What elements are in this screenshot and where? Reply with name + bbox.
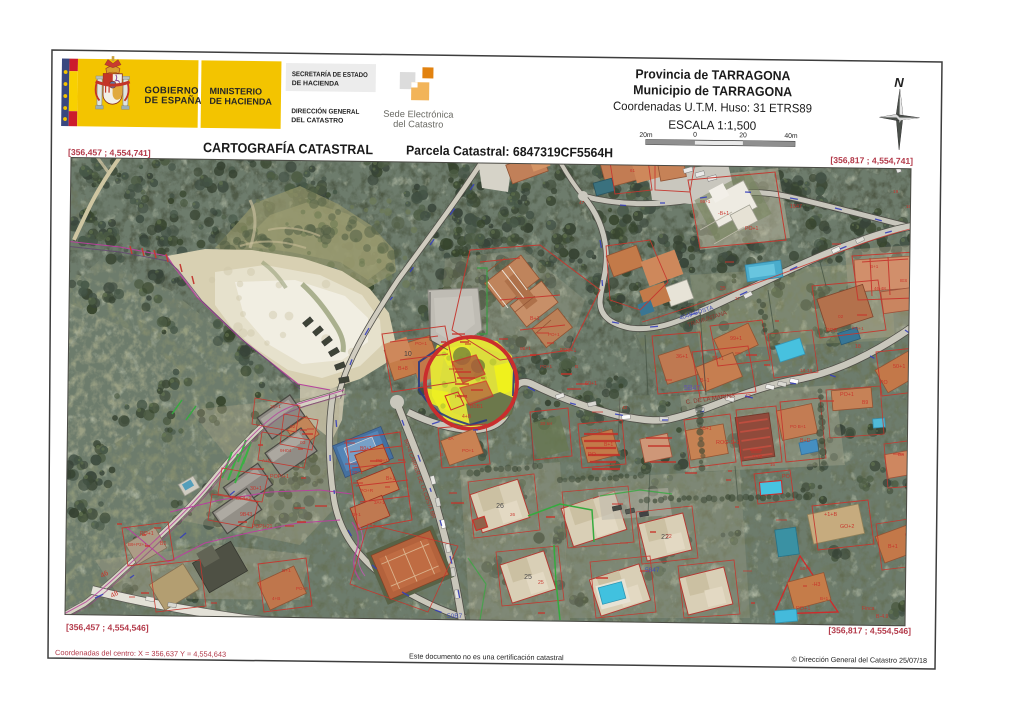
svg-text:CARTOGRAFÍA CATASTRAL: CARTOGRAFÍA CATASTRAL: [203, 140, 373, 157]
svg-text:DEL CATASTRO: DEL CATASTRO: [291, 117, 343, 125]
svg-text:0: 0: [693, 132, 697, 139]
svg-text:Este documento no es una certi: Este documento no es una certificación c…: [409, 652, 564, 663]
svg-text:N: N: [894, 75, 904, 90]
svg-text:Municipio de TARRAGONA: Municipio de TARRAGONA: [633, 82, 793, 99]
svg-text:[356,457 ; 4,554,741]: [356,457 ; 4,554,741]: [68, 147, 151, 158]
svg-text:[356,817 ; 4,554,546]: [356,817 ; 4,554,546]: [828, 625, 911, 636]
svg-text:DE HACIENDA: DE HACIENDA: [292, 80, 339, 88]
svg-text:DE ESPAÑA: DE ESPAÑA: [144, 95, 202, 107]
svg-text:del Catastro: del Catastro: [393, 119, 443, 130]
svg-text:© Dirección General del Catast: © Dirección General del Catastro 25/07/1…: [791, 655, 927, 665]
svg-text:20: 20: [739, 132, 747, 139]
svg-text:[356,457 ; 4,554,546]: [356,457 ; 4,554,546]: [66, 622, 149, 633]
svg-text:DE HACIENDA: DE HACIENDA: [209, 96, 272, 107]
svg-text:Provincia de TARRAGONA: Provincia de TARRAGONA: [635, 66, 791, 83]
svg-text:20m: 20m: [639, 132, 653, 139]
svg-text:[356,817 ; 4,554,741]: [356,817 ; 4,554,741]: [830, 155, 913, 166]
svg-text:MINISTERIO: MINISTERIO: [210, 86, 263, 97]
svg-text:Coordenadas del centro: X = 35: Coordenadas del centro: X = 356,637 Y = …: [55, 648, 226, 659]
svg-text:Coordenadas U.T.M. Huso: 31 ET: Coordenadas U.T.M. Huso: 31 ETRS89: [613, 99, 812, 116]
svg-text:Parcela Catastral: 6847319CF55: Parcela Catastral: 6847319CF5564H: [406, 143, 613, 161]
svg-text:ESCALA 1:1,500: ESCALA 1:1,500: [668, 118, 756, 133]
svg-text:40m: 40m: [784, 133, 798, 140]
